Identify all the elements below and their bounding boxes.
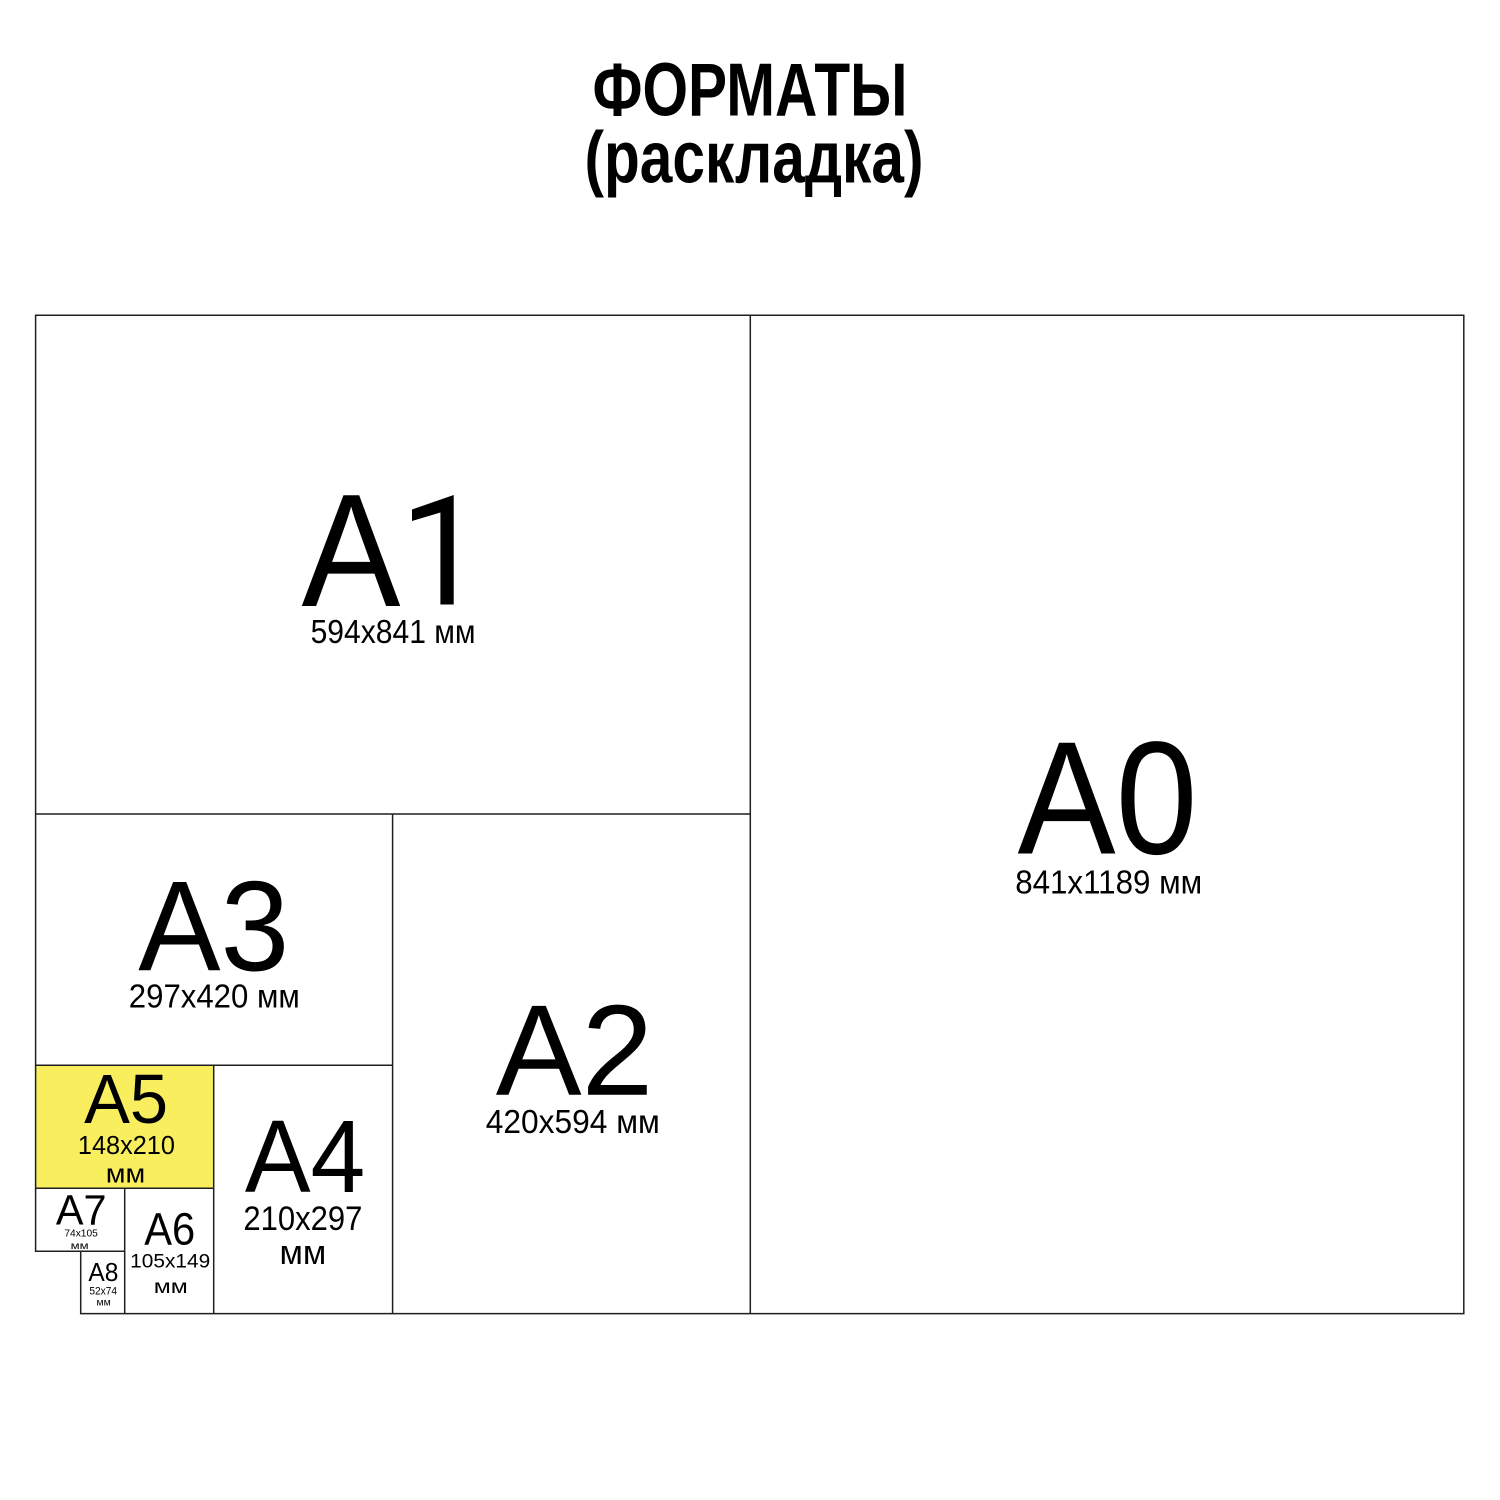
svg-text:105х149: 105х149	[130, 1252, 210, 1273]
svg-text:А8: А8	[88, 1257, 118, 1287]
svg-text:А6: А6	[144, 1204, 195, 1255]
svg-text:мм: мм	[71, 1240, 89, 1252]
svg-text:841х1189 мм: 841х1189 мм	[1015, 864, 1202, 901]
svg-text:420х594 мм: 420х594 мм	[486, 1103, 660, 1140]
svg-text:мм: мм	[154, 1277, 188, 1298]
svg-text:74х105: 74х105	[64, 1228, 98, 1240]
svg-text:мм: мм	[106, 1160, 146, 1188]
svg-text:(раскладка): (раскладка)	[585, 118, 924, 199]
svg-text:А4: А4	[245, 1099, 366, 1214]
svg-text:А0: А0	[1018, 709, 1198, 889]
svg-text:А5: А5	[84, 1060, 168, 1138]
svg-text:А7: А7	[56, 1186, 107, 1233]
svg-text:А2: А2	[496, 979, 654, 1123]
svg-text:148х210: 148х210	[78, 1132, 175, 1160]
svg-text:594х841 мм: 594х841 мм	[311, 613, 476, 650]
svg-text:мм: мм	[280, 1234, 327, 1272]
svg-text:297х420 мм: 297х420 мм	[129, 978, 300, 1015]
svg-text:210х297: 210х297	[243, 1200, 362, 1238]
svg-text:мм: мм	[97, 1297, 111, 1309]
